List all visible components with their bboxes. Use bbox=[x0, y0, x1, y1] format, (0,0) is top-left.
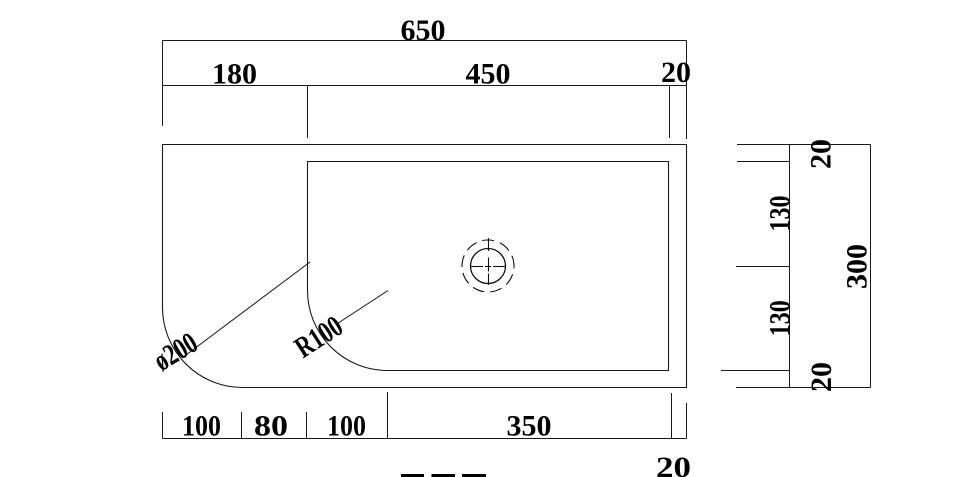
svg-text:20: 20 bbox=[661, 56, 691, 89]
svg-text:130: 130 bbox=[764, 196, 797, 232]
svg-text:650: 650 bbox=[401, 14, 446, 47]
svg-text:80: 80 bbox=[254, 410, 288, 443]
svg-text:20: 20 bbox=[805, 139, 838, 169]
svg-text:100: 100 bbox=[182, 410, 221, 443]
svg-text:300: 300 bbox=[841, 244, 874, 289]
svg-text:350: 350 bbox=[507, 410, 552, 443]
svg-text:130: 130 bbox=[764, 300, 797, 336]
svg-text:20: 20 bbox=[656, 451, 691, 477]
svg-text:450: 450 bbox=[466, 58, 511, 91]
svg-text:100: 100 bbox=[327, 410, 366, 443]
svg-text:180: 180 bbox=[212, 58, 257, 91]
svg-text:20: 20 bbox=[805, 362, 838, 392]
